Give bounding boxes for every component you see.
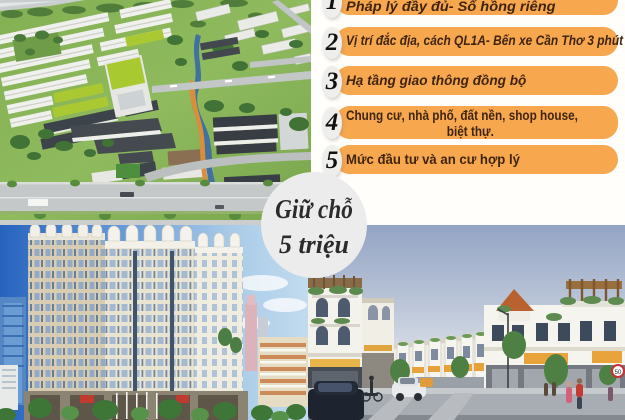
svg-text:50: 50: [615, 370, 622, 376]
